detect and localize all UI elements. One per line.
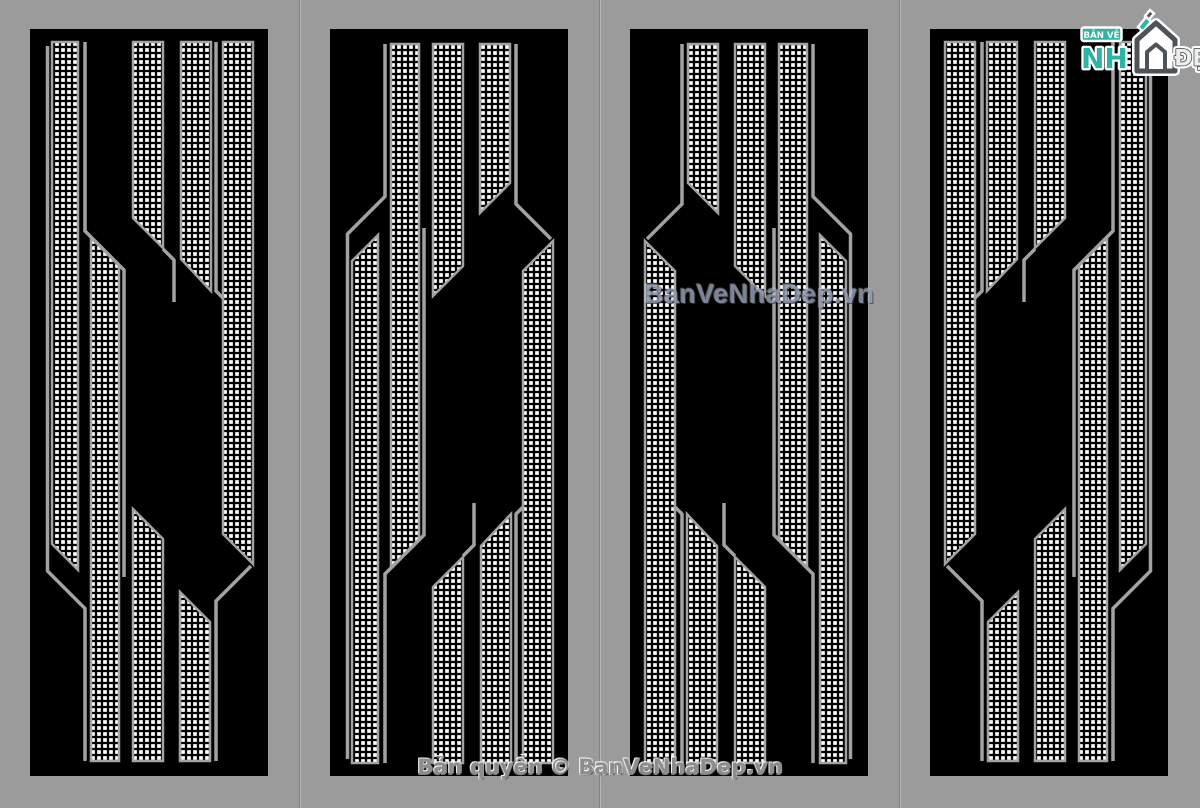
copyright-text: Bản quyền © BanVeNhaDep.vn [0,755,1200,779]
house-icon [1137,10,1175,71]
panel-1 [30,29,268,776]
sheet-divider-3 [899,0,901,808]
sheet-divider-2 [599,0,601,808]
panel-3 [630,29,868,776]
sheet-divider-1 [299,0,301,808]
logo-badge-text: BẢN VẼ [1084,29,1120,41]
drawing-sheet: BanVeNhaDep.vn Bản quyền © BanVeNhaDep.v… [0,0,1200,808]
logo-main-text: NH [1081,42,1128,75]
site-logo: BẢN VẼ NH ĐẸP ĐẸP [1080,6,1200,80]
logo-badge: BẢN VẼ [1082,28,1122,42]
center-watermark-text: BanVeNhaDep.vn [644,279,875,310]
panel-4 [930,29,1168,776]
logo-suffix-text: ĐẸP [1174,47,1200,72]
panel-2 [330,29,568,776]
